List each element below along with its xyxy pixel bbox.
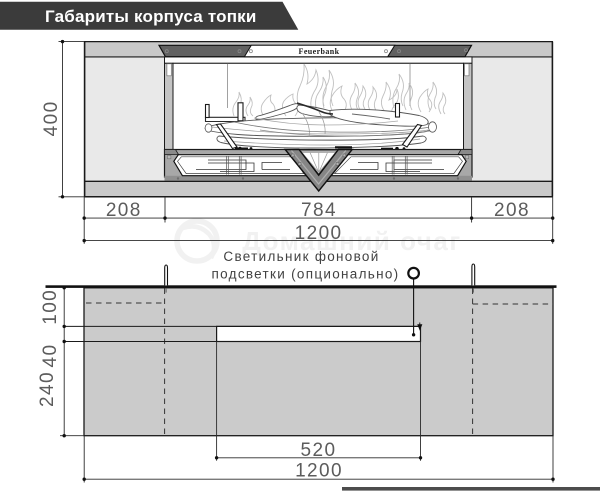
svg-text:1200: 1200 [295,461,343,482]
svg-text:Светильник фоновой: Светильник фоновой [223,249,379,264]
svg-text:подсветки (опционально): подсветки (опционально) [212,267,400,282]
svg-text:240: 240 [37,371,58,407]
svg-text:Габариты корпуса топки: Габариты корпуса топки [45,7,257,26]
svg-text:208: 208 [494,200,530,221]
svg-text:520: 520 [301,440,337,461]
svg-text:40: 40 [40,344,61,368]
svg-text:Feuerbank: Feuerbank [299,47,340,56]
svg-text:208: 208 [106,200,142,221]
svg-text:1200: 1200 [295,223,343,244]
svg-text:100: 100 [40,289,61,325]
svg-text:784: 784 [301,200,337,221]
svg-text:400: 400 [41,100,62,136]
